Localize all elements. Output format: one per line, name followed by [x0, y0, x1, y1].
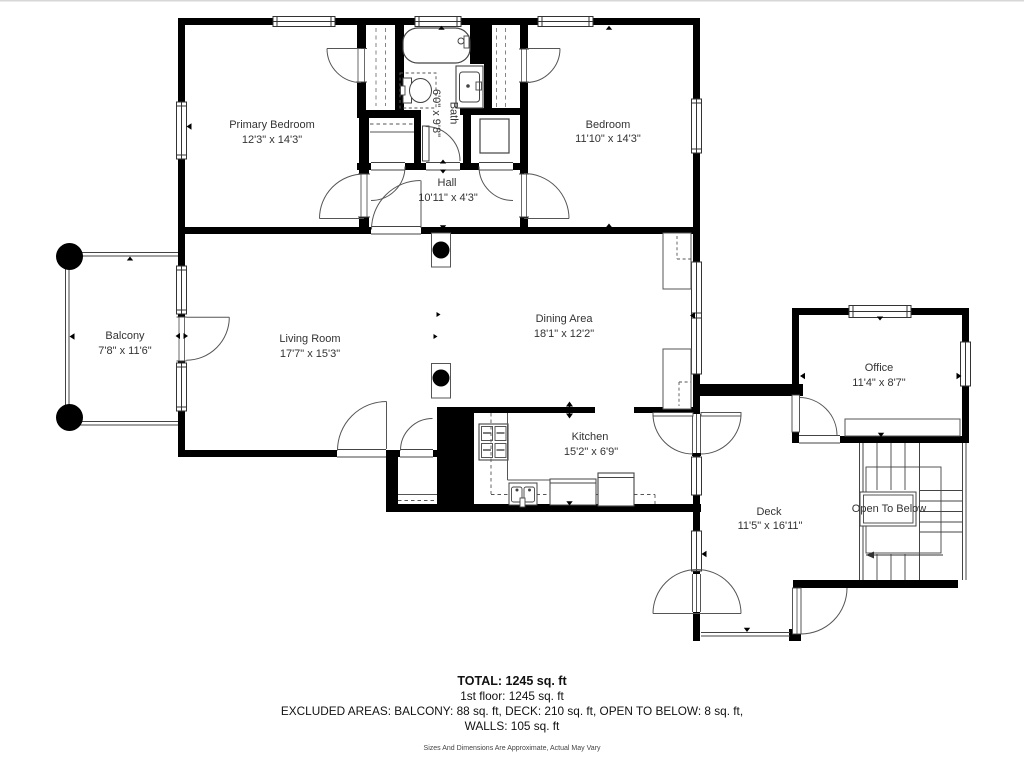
svg-text:TOTAL: 1245 sq. ft: TOTAL: 1245 sq. ft: [457, 674, 567, 688]
svg-text:Bedroom: Bedroom: [586, 119, 631, 131]
svg-text:11'4" x 8'7": 11'4" x 8'7": [852, 377, 905, 389]
svg-text:11'10" x 14'3": 11'10" x 14'3": [575, 133, 641, 145]
svg-text:18'1" x 12'2": 18'1" x 12'2": [534, 328, 594, 340]
svg-text:Balcony: Balcony: [105, 330, 145, 342]
svg-text:Primary Bedroom: Primary Bedroom: [229, 119, 315, 131]
svg-text:Hall: Hall: [438, 177, 457, 189]
svg-text:Office: Office: [865, 362, 894, 374]
svg-text:15'2" x 6'9": 15'2" x 6'9": [564, 446, 618, 458]
svg-text:Living Room: Living Room: [279, 333, 340, 345]
svg-text:Deck: Deck: [756, 506, 782, 518]
svg-text:WALLS: 105 sq. ft: WALLS: 105 sq. ft: [465, 719, 560, 733]
svg-text:12'3" x 14'3": 12'3" x 14'3": [242, 134, 302, 146]
svg-text:11'5" x 16'11": 11'5" x 16'11": [738, 520, 803, 532]
svg-text:17'7" x 15'3": 17'7" x 15'3": [280, 348, 340, 360]
svg-text:6'0" x 9'8": 6'0" x 9'8": [430, 89, 442, 137]
svg-text:Dining Area: Dining Area: [536, 313, 594, 325]
svg-text:Open To Below: Open To Below: [852, 503, 926, 515]
svg-text:Sizes And Dimensions Are Appro: Sizes And Dimensions Are Approximate, Ac…: [424, 745, 601, 752]
svg-text:1st floor: 1245 sq. ft: 1st floor: 1245 sq. ft: [460, 689, 564, 703]
svg-text:10'11" x 4'3": 10'11" x 4'3": [418, 192, 478, 204]
svg-text:Bath: Bath: [448, 102, 460, 125]
svg-text:Kitchen: Kitchen: [572, 431, 609, 443]
svg-text:7'8" x 11'6": 7'8" x 11'6": [98, 345, 151, 357]
svg-text:EXCLUDED AREAS: BALCONY: 88 sq: EXCLUDED AREAS: BALCONY: 88 sq. ft, DECK…: [281, 704, 743, 718]
